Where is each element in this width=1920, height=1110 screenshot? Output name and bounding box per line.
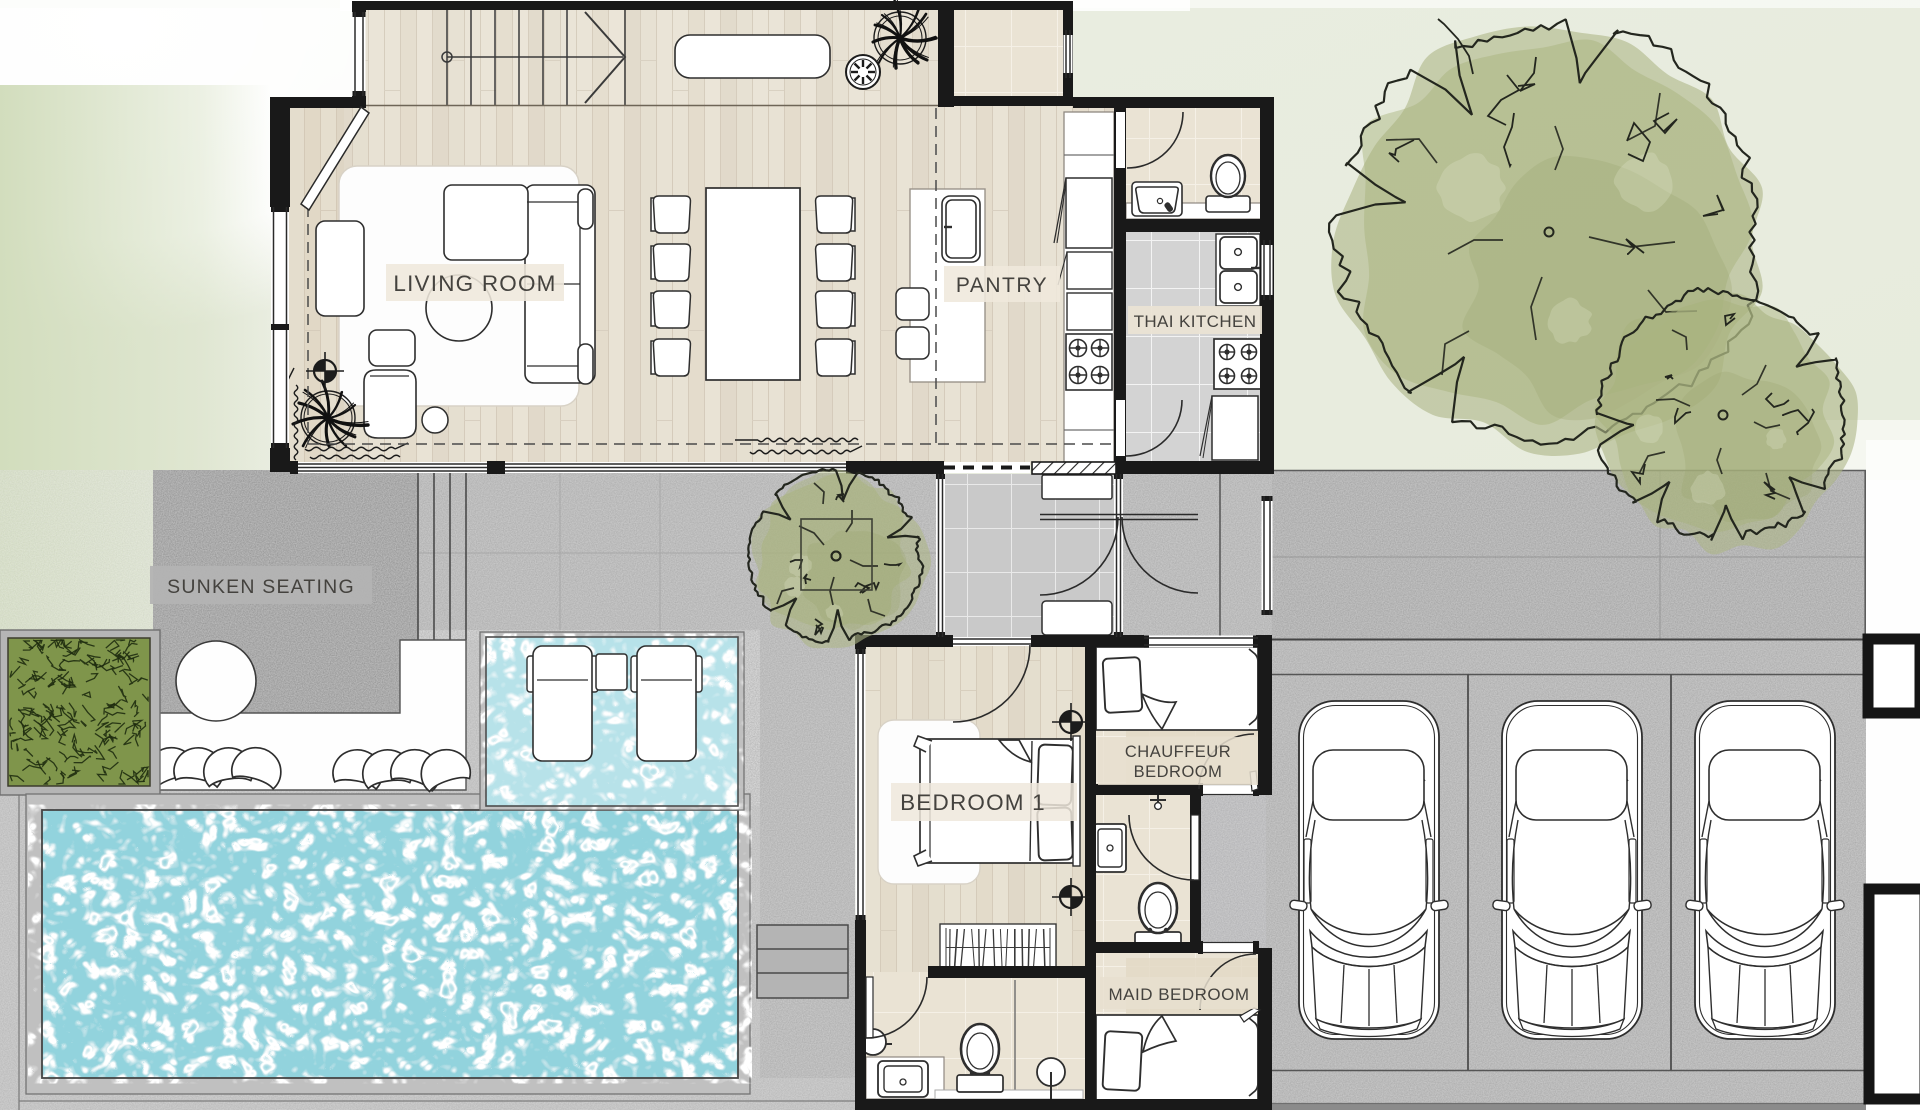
svg-text:SUNKEN SEATING: SUNKEN SEATING <box>167 576 355 598</box>
svg-text:BEDROOM: BEDROOM <box>1134 763 1223 781</box>
svg-text:CHAUFFEUR: CHAUFFEUR <box>1125 743 1231 761</box>
svg-text:THAI KITCHEN: THAI KITCHEN <box>1134 312 1257 331</box>
svg-text:LIVING ROOM: LIVING ROOM <box>393 271 556 296</box>
svg-text:MAID BEDROOM: MAID BEDROOM <box>1108 985 1249 1004</box>
svg-text:BEDROOM 1: BEDROOM 1 <box>900 790 1046 815</box>
svg-text:PANTRY: PANTRY <box>956 274 1048 297</box>
